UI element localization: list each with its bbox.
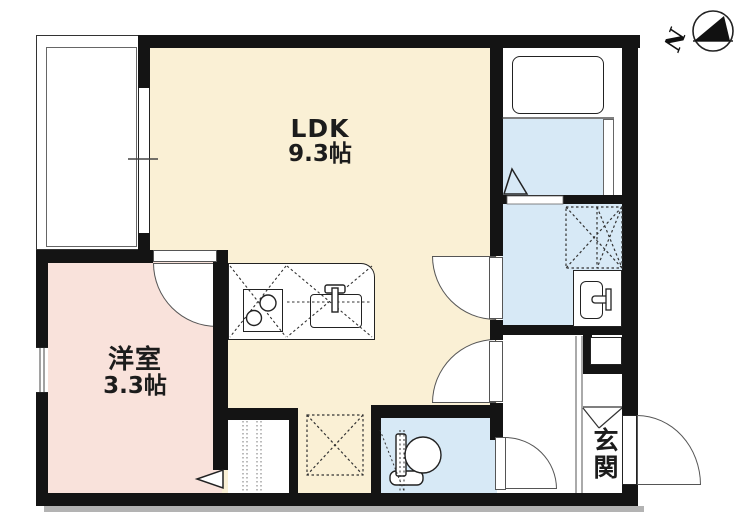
western-room-label-group: 洋室 3.3帖 [70,346,200,399]
wall [138,35,150,88]
shoe-cabinet [590,337,622,365]
wall [371,405,503,418]
entry-door-leaf [622,415,637,485]
bathtub [512,56,604,114]
entry-door-swing [637,415,701,485]
toilet-door-swing [505,437,557,489]
western-room-label: 洋室 [70,346,200,374]
wall [138,35,640,48]
ldk-label: LDK [250,115,390,142]
floor-plan: N LDK 9.3帖 洋室 3.3帖 玄関 [0,0,739,516]
closet-floor [228,420,290,493]
hallway-door-leaf [489,341,503,402]
wall [289,408,298,497]
bathroom-edge-strip [603,119,614,196]
stove [243,289,283,332]
wall [36,493,638,506]
wall [490,40,503,256]
wall [583,365,622,374]
ldk-label-group: LDK 9.3帖 [250,115,390,167]
wall [502,195,622,204]
wall [622,35,638,415]
balcony-inner-line [46,47,137,247]
wall [36,250,48,347]
washroom-door-leaf [489,257,503,319]
bathroom-floor [502,119,603,196]
shadow [44,506,644,512]
wall [490,403,503,440]
wall [213,408,297,420]
wall [36,393,48,493]
ldk-size: 9.3帖 [250,142,390,167]
toilet-door-leaf [495,437,506,490]
entrance-label: 玄関 [588,418,618,490]
balcony-sliding-window [138,88,150,233]
wall [138,233,150,253]
wall [36,250,153,263]
wall [371,405,381,493]
western-room-window [36,347,48,393]
north-arrow-icon: N [657,11,733,55]
western-room-door-leaf [153,250,217,262]
kitchen-sink [310,294,362,328]
wall [213,250,228,470]
toilet-floor [377,418,497,493]
genkan-boundary-lines [576,336,582,493]
washbasin-bowl [580,281,603,319]
compass-letter: N [657,24,691,55]
western-room-size: 3.3帖 [70,374,200,399]
